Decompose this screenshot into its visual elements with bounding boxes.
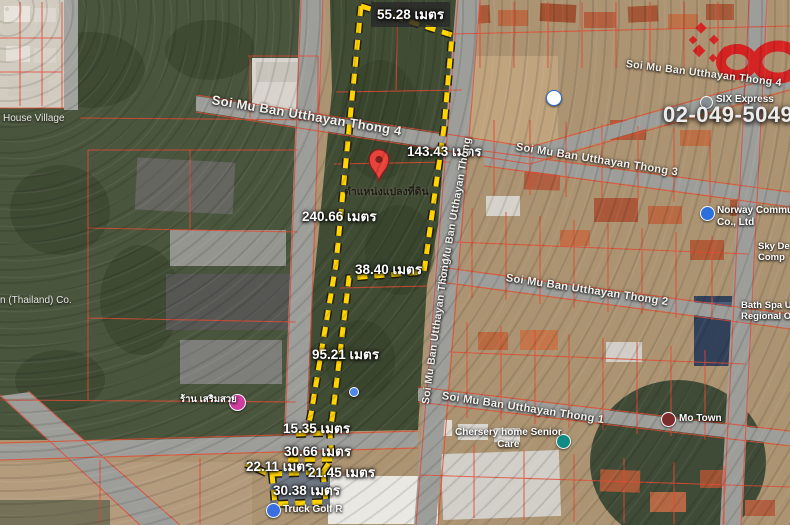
poi-label-sky[interactable]: Sky De Comp [758,241,790,264]
poi-dot-motown[interactable] [661,412,676,427]
pin-label: ตำแหน่งแปลงที่ดิน [344,183,429,200]
poi-chersery-line2: Care [455,439,562,451]
poi-label-truck[interactable]: Truck Golf R [283,504,342,516]
poi-sky-line1: Sky De [758,241,790,252]
poi-dot-play[interactable] [546,90,562,106]
place-label-thailand-co: n (Thailand) Co. [0,295,72,306]
measurement-label: 22.11 เมตร [246,455,312,477]
place-label-house-village: House Village [3,113,65,124]
poi-norway-line1: Norway Communication [717,205,790,217]
measurement-label: 30.38 เมตร [273,479,340,501]
poi-chersery-line1: Chersery home Senior [455,427,562,439]
measurement-label: 55.28 เมตร [371,2,450,27]
poi-label-motown[interactable]: Mo Town [679,413,722,425]
poi-label-bathspa[interactable]: Bath Spa Universi Regional Offi [741,300,790,323]
satellite-map[interactable]: ; [0,0,790,525]
poi-dot-norway[interactable] [700,206,715,221]
phone-number: 02-049-5049 [663,102,790,128]
poi-sky-line2: Comp [758,252,790,263]
poi-bathspa-line1: Bath Spa Universi [741,300,790,311]
poi-label-salon[interactable]: ร้าน เสริมสวย [180,394,237,405]
measurement-label: 15.35 เมตร [283,417,350,439]
vegetation-bottom-left [0,500,110,525]
poi-label-norway[interactable]: Norway Communication Co., Ltd [717,205,790,229]
measurement-label: 38.40 เมตร [355,258,422,280]
poi-dot-small[interactable] [349,387,359,397]
poi-label-chersery[interactable]: Chersery home Senior Care [455,427,562,451]
poi-norway-line2: Co., Ltd [717,217,790,229]
housing-top-left [0,0,78,110]
poi-dot-truck[interactable] [266,503,281,518]
measurement-label: 95.21 เมตร [312,343,379,365]
measurement-label: 240.66 เมตร [302,205,377,227]
poi-bathspa-line2: Regional Offi [741,311,790,322]
